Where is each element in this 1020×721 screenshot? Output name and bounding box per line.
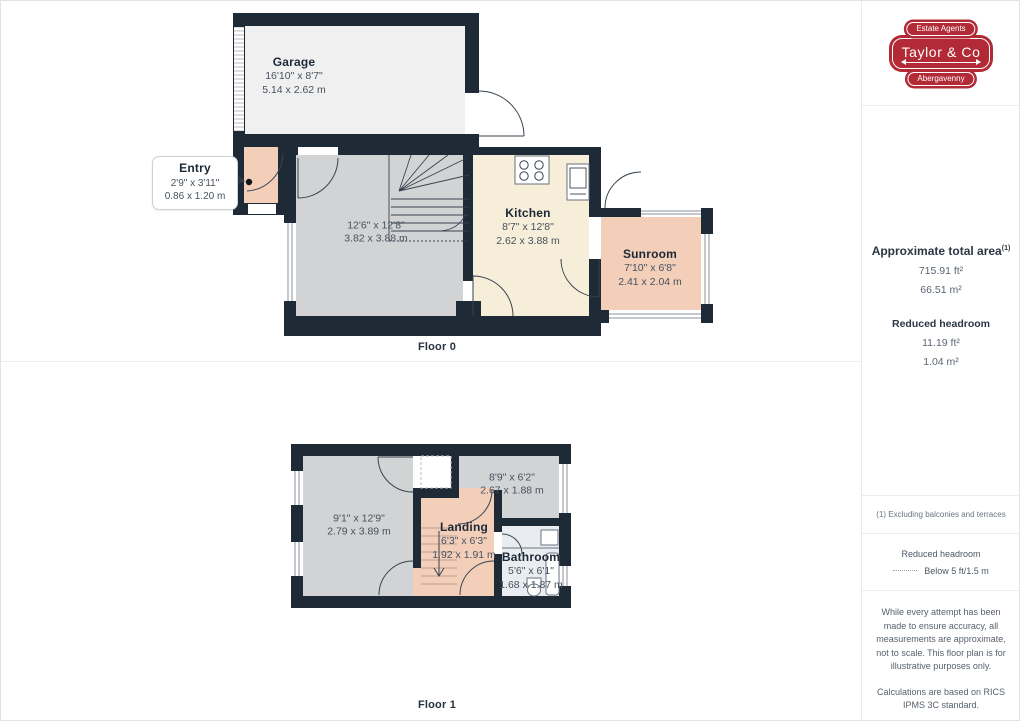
stove-icon bbox=[515, 156, 549, 184]
disclaimer-text-1: While every attempt has been made to ens… bbox=[875, 606, 1007, 674]
agency-name: Taylor & Co bbox=[902, 45, 981, 59]
sunroom-window-right bbox=[701, 234, 713, 304]
sink-basin-icon bbox=[541, 530, 558, 545]
living-room-label: 12'6" x 12'8" 3.82 x 3.88 m bbox=[344, 220, 408, 247]
floor1-label: Floor 1 bbox=[418, 699, 456, 711]
floor-divider bbox=[1, 361, 861, 362]
disclaimer-text-2: Calculations are based on RICS IPMS 3C s… bbox=[875, 686, 1007, 713]
sink-icon bbox=[567, 164, 589, 200]
total-area-ft: 715.91 ft² bbox=[862, 265, 1020, 277]
landing-label: Landing 6'3" x 6'3" 1.92 x 1.91 m bbox=[432, 520, 496, 562]
reduced-headroom-ft: 11.19 ft² bbox=[862, 337, 1020, 349]
logo-arrow-icon bbox=[902, 62, 980, 63]
sunroom-window-bottom bbox=[609, 310, 701, 322]
agency-location: Abergavenny bbox=[907, 72, 974, 86]
garage-swing-door bbox=[479, 91, 524, 136]
garage-door bbox=[234, 27, 244, 131]
bedroom1-window-2 bbox=[291, 542, 303, 576]
logo-badge: Taylor & Co bbox=[889, 35, 993, 72]
bedroom2-label: 8'9" x 6'2" 2.67 x 1.88 m bbox=[480, 472, 544, 499]
agency-logo: Estate Agents Taylor & Co Abergavenny bbox=[889, 22, 993, 86]
bathroom-label: Bathroom 5'6" x 6'1" 1.68 x 1.87 m bbox=[499, 550, 563, 592]
footnote-section: (1) Excluding balconies and terraces bbox=[862, 496, 1020, 534]
footnote-marker: (1) bbox=[1002, 245, 1011, 252]
bedroom2-window bbox=[559, 464, 571, 513]
living-window bbox=[284, 223, 296, 301]
info-sidebar: Estate Agents Taylor & Co Abergavenny Ap… bbox=[861, 1, 1020, 720]
legend-title: Reduced headroom bbox=[901, 549, 980, 559]
logo-section: Estate Agents Taylor & Co Abergavenny bbox=[862, 1, 1020, 106]
kitchen-label: Kitchen 8'7" x 12'8" 2.62 x 3.88 m bbox=[496, 206, 560, 248]
legend-label: Below 5 ft/1.5 m bbox=[924, 566, 989, 576]
disclaimer-section: While every attempt has been made to ens… bbox=[862, 591, 1020, 720]
total-area-title: Approximate total area(1) bbox=[862, 244, 1020, 258]
bedroom1-label: 9'1" x 12'9" 2.79 x 3.89 m bbox=[327, 513, 391, 540]
total-area-m: 66.51 m² bbox=[862, 284, 1020, 296]
footnote-text: (1) Excluding balconies and terraces bbox=[876, 510, 1005, 519]
dashed-line-swatch bbox=[893, 570, 917, 571]
closet bbox=[421, 456, 451, 488]
entry-callout: Entry 2'9" x 3'11" 0.86 x 1.20 m bbox=[152, 156, 238, 210]
area-section: Approximate total area(1) 715.91 ft² 66.… bbox=[862, 106, 1020, 496]
sunroom-window-top bbox=[641, 208, 701, 217]
sunroom-label: Sunroom 7'10" x 6'8" 2.41 x 2.04 m bbox=[618, 247, 682, 289]
reduced-headroom-m: 1.04 m² bbox=[862, 356, 1020, 368]
floorplan-page: Garage 16'10" x 8'7" 5.14 x 2.62 m Entry… bbox=[0, 0, 1020, 721]
garage-label: Garage 16'10" x 8'7" 5.14 x 2.62 m bbox=[262, 55, 326, 97]
floor0-label: Floor 0 bbox=[418, 341, 456, 353]
bedroom1-window-1 bbox=[291, 471, 303, 505]
reduced-headroom-title: Reduced headroom bbox=[862, 318, 1020, 330]
sunroom-exterior-door bbox=[605, 172, 641, 208]
logo-tagline: Estate Agents bbox=[906, 22, 975, 36]
entry-door-gap bbox=[248, 204, 276, 214]
legend-section: Reduced headroom Below 5 ft/1.5 m bbox=[862, 534, 1020, 591]
